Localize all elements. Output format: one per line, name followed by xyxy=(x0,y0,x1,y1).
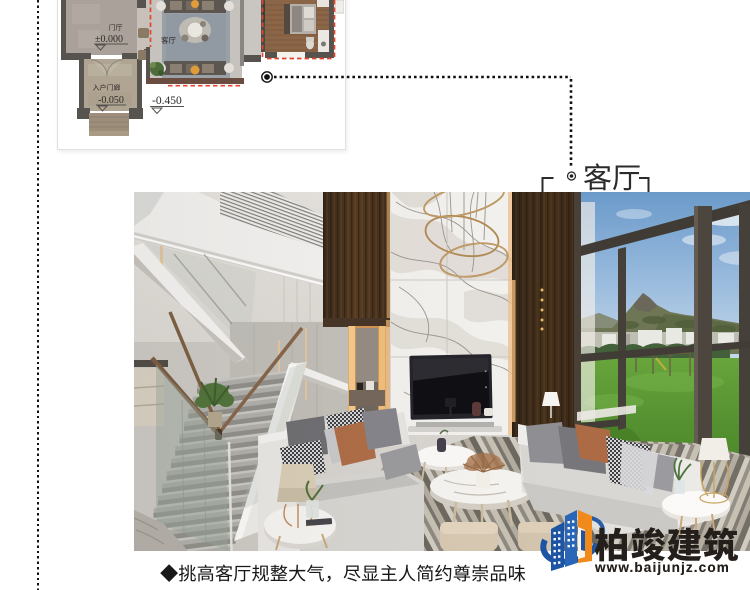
svg-text:www.baijunjz.com: www.baijunjz.com xyxy=(594,560,730,575)
